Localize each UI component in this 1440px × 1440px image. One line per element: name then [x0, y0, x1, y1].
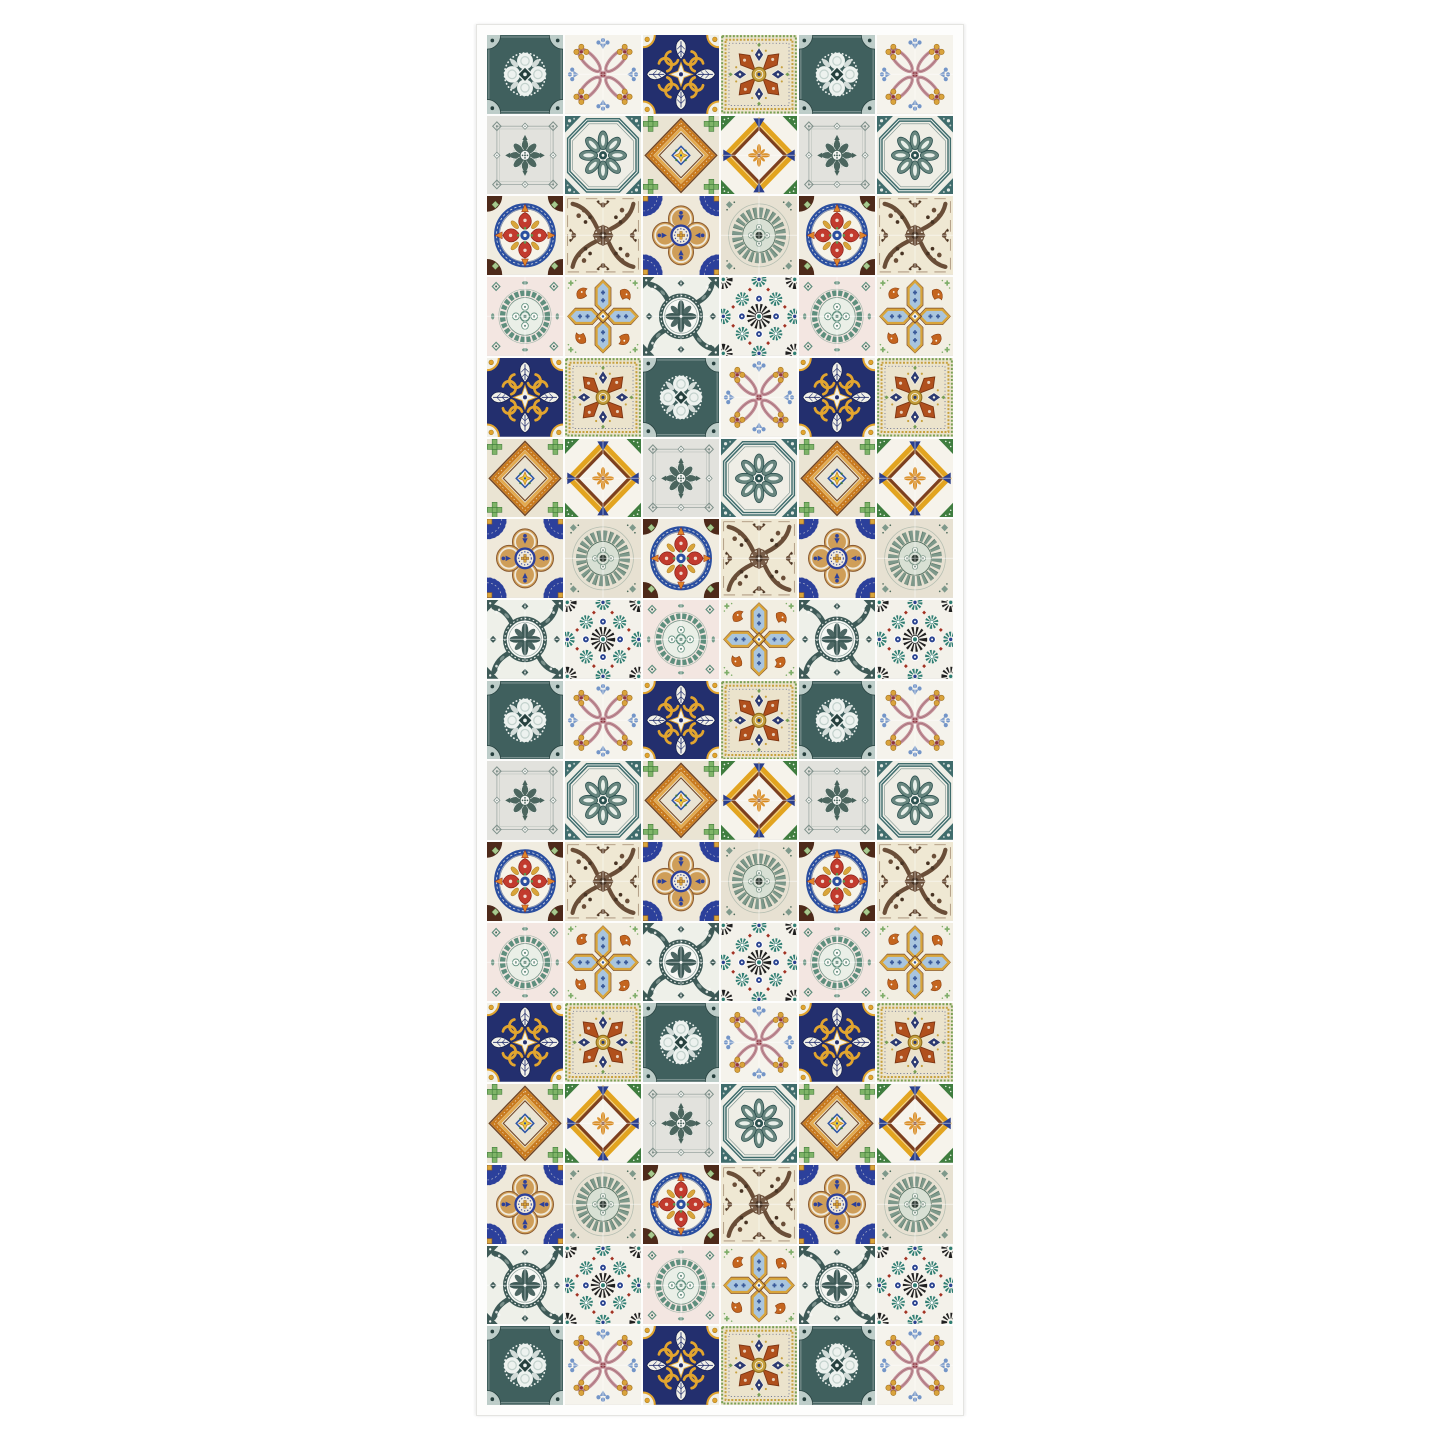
tile-teal-octagon: [565, 116, 641, 195]
tile-sage-circle: [877, 519, 953, 598]
tile-teal-rosette: [487, 681, 563, 760]
tile-gray-lace: [643, 439, 719, 518]
tile-sage-circle: [877, 1165, 953, 1244]
tile-red-quatrefoil: [643, 1165, 719, 1244]
tile-pink-loops: [877, 35, 953, 114]
tile-orange-diamond: [799, 1084, 875, 1163]
tile-orange-pinwheel: [877, 1084, 953, 1163]
tile-red-quatrefoil: [799, 196, 875, 275]
tile-blue-gold-quatrefoil: [643, 196, 719, 275]
tile-gray-lace: [643, 1084, 719, 1163]
tile-green-medallion: [799, 277, 875, 356]
tile-teal-rosette: [487, 35, 563, 114]
tile-brown-damask: [877, 842, 953, 921]
tile-orange-cross-hex: [565, 277, 641, 356]
tile-sage-circle: [565, 519, 641, 598]
tile-orange-star-mosaic: [721, 35, 797, 114]
tile-red-quatrefoil: [487, 196, 563, 275]
tile-gray-lace: [487, 116, 563, 195]
tile-orange-diamond: [643, 116, 719, 195]
tile-teal-ornate-circle: [643, 923, 719, 1002]
tile-panel: [476, 24, 964, 1416]
tile-orange-star-mosaic: [721, 1326, 797, 1405]
tile-orange-pinwheel: [721, 116, 797, 195]
tile-navy-gold-cross: [799, 1003, 875, 1082]
tile-brown-damask: [877, 196, 953, 275]
tile-navy-gold-cross: [643, 1326, 719, 1405]
tile-blue-gold-quatrefoil: [643, 842, 719, 921]
tile-teal-rosette: [799, 681, 875, 760]
tile-teal-ornate-circle: [799, 1246, 875, 1325]
tile-sage-circle: [565, 1165, 641, 1244]
tile-moorish-mosaic: [877, 600, 953, 679]
tile-brown-damask: [565, 842, 641, 921]
tile-moorish-mosaic: [565, 1246, 641, 1325]
tile-teal-rosette: [799, 1326, 875, 1405]
tile-sage-circle: [721, 842, 797, 921]
tile-teal-ornate-circle: [487, 1246, 563, 1325]
tile-pink-loops: [565, 681, 641, 760]
tile-teal-ornate-circle: [643, 277, 719, 356]
tile-orange-diamond: [487, 1084, 563, 1163]
tile-red-quatrefoil: [487, 842, 563, 921]
tile-teal-octagon: [877, 761, 953, 840]
tile-orange-cross-hex: [877, 277, 953, 356]
tile-teal-ornate-circle: [799, 600, 875, 679]
tile-orange-diamond: [643, 761, 719, 840]
tile-orange-cross-hex: [877, 923, 953, 1002]
tile-brown-damask: [565, 196, 641, 275]
tile-pink-loops: [877, 1326, 953, 1405]
tile-navy-gold-cross: [487, 358, 563, 437]
tile-orange-cross-hex: [721, 600, 797, 679]
tile-moorish-mosaic: [877, 1246, 953, 1325]
tile-teal-rosette: [487, 1326, 563, 1405]
tile-grid: [487, 35, 953, 1405]
tile-orange-cross-hex: [565, 923, 641, 1002]
tile-orange-star-mosaic: [721, 681, 797, 760]
tile-moorish-mosaic: [721, 277, 797, 356]
tile-teal-octagon: [721, 1084, 797, 1163]
tile-orange-cross-hex: [721, 1246, 797, 1325]
tile-orange-diamond: [799, 439, 875, 518]
tile-blue-gold-quatrefoil: [799, 1165, 875, 1244]
tile-pink-loops: [721, 358, 797, 437]
tile-pink-loops: [565, 35, 641, 114]
tile-navy-gold-cross: [799, 358, 875, 437]
tile-navy-gold-cross: [487, 1003, 563, 1082]
tile-moorish-mosaic: [565, 600, 641, 679]
tile-red-quatrefoil: [799, 842, 875, 921]
tile-green-medallion: [643, 600, 719, 679]
tile-teal-rosette: [643, 358, 719, 437]
tile-orange-star-mosaic: [565, 1003, 641, 1082]
page-background: [0, 0, 1440, 1440]
tile-pink-loops: [877, 681, 953, 760]
tile-green-medallion: [799, 923, 875, 1002]
tile-red-quatrefoil: [643, 519, 719, 598]
tile-pink-loops: [721, 1003, 797, 1082]
tile-green-medallion: [487, 277, 563, 356]
tile-teal-octagon: [877, 116, 953, 195]
tile-gray-lace: [799, 761, 875, 840]
tile-orange-pinwheel: [565, 1084, 641, 1163]
tile-teal-rosette: [799, 35, 875, 114]
tile-gray-lace: [799, 116, 875, 195]
tile-navy-gold-cross: [643, 35, 719, 114]
tile-orange-pinwheel: [877, 439, 953, 518]
tile-orange-star-mosaic: [877, 1003, 953, 1082]
tile-teal-ornate-circle: [487, 600, 563, 679]
tile-brown-damask: [721, 1165, 797, 1244]
tile-sage-circle: [721, 196, 797, 275]
tile-green-medallion: [487, 923, 563, 1002]
tile-gray-lace: [487, 761, 563, 840]
tile-navy-gold-cross: [643, 681, 719, 760]
tile-teal-octagon: [565, 761, 641, 840]
tile-teal-octagon: [721, 439, 797, 518]
tile-blue-gold-quatrefoil: [487, 519, 563, 598]
tile-orange-pinwheel: [565, 439, 641, 518]
tile-orange-diamond: [487, 439, 563, 518]
tile-pink-loops: [565, 1326, 641, 1405]
tile-orange-star-mosaic: [877, 358, 953, 437]
tile-blue-gold-quatrefoil: [487, 1165, 563, 1244]
tile-moorish-mosaic: [721, 923, 797, 1002]
tile-teal-rosette: [643, 1003, 719, 1082]
tile-brown-damask: [721, 519, 797, 598]
tile-orange-pinwheel: [721, 761, 797, 840]
tile-green-medallion: [643, 1246, 719, 1325]
tile-blue-gold-quatrefoil: [799, 519, 875, 598]
tile-orange-star-mosaic: [565, 358, 641, 437]
